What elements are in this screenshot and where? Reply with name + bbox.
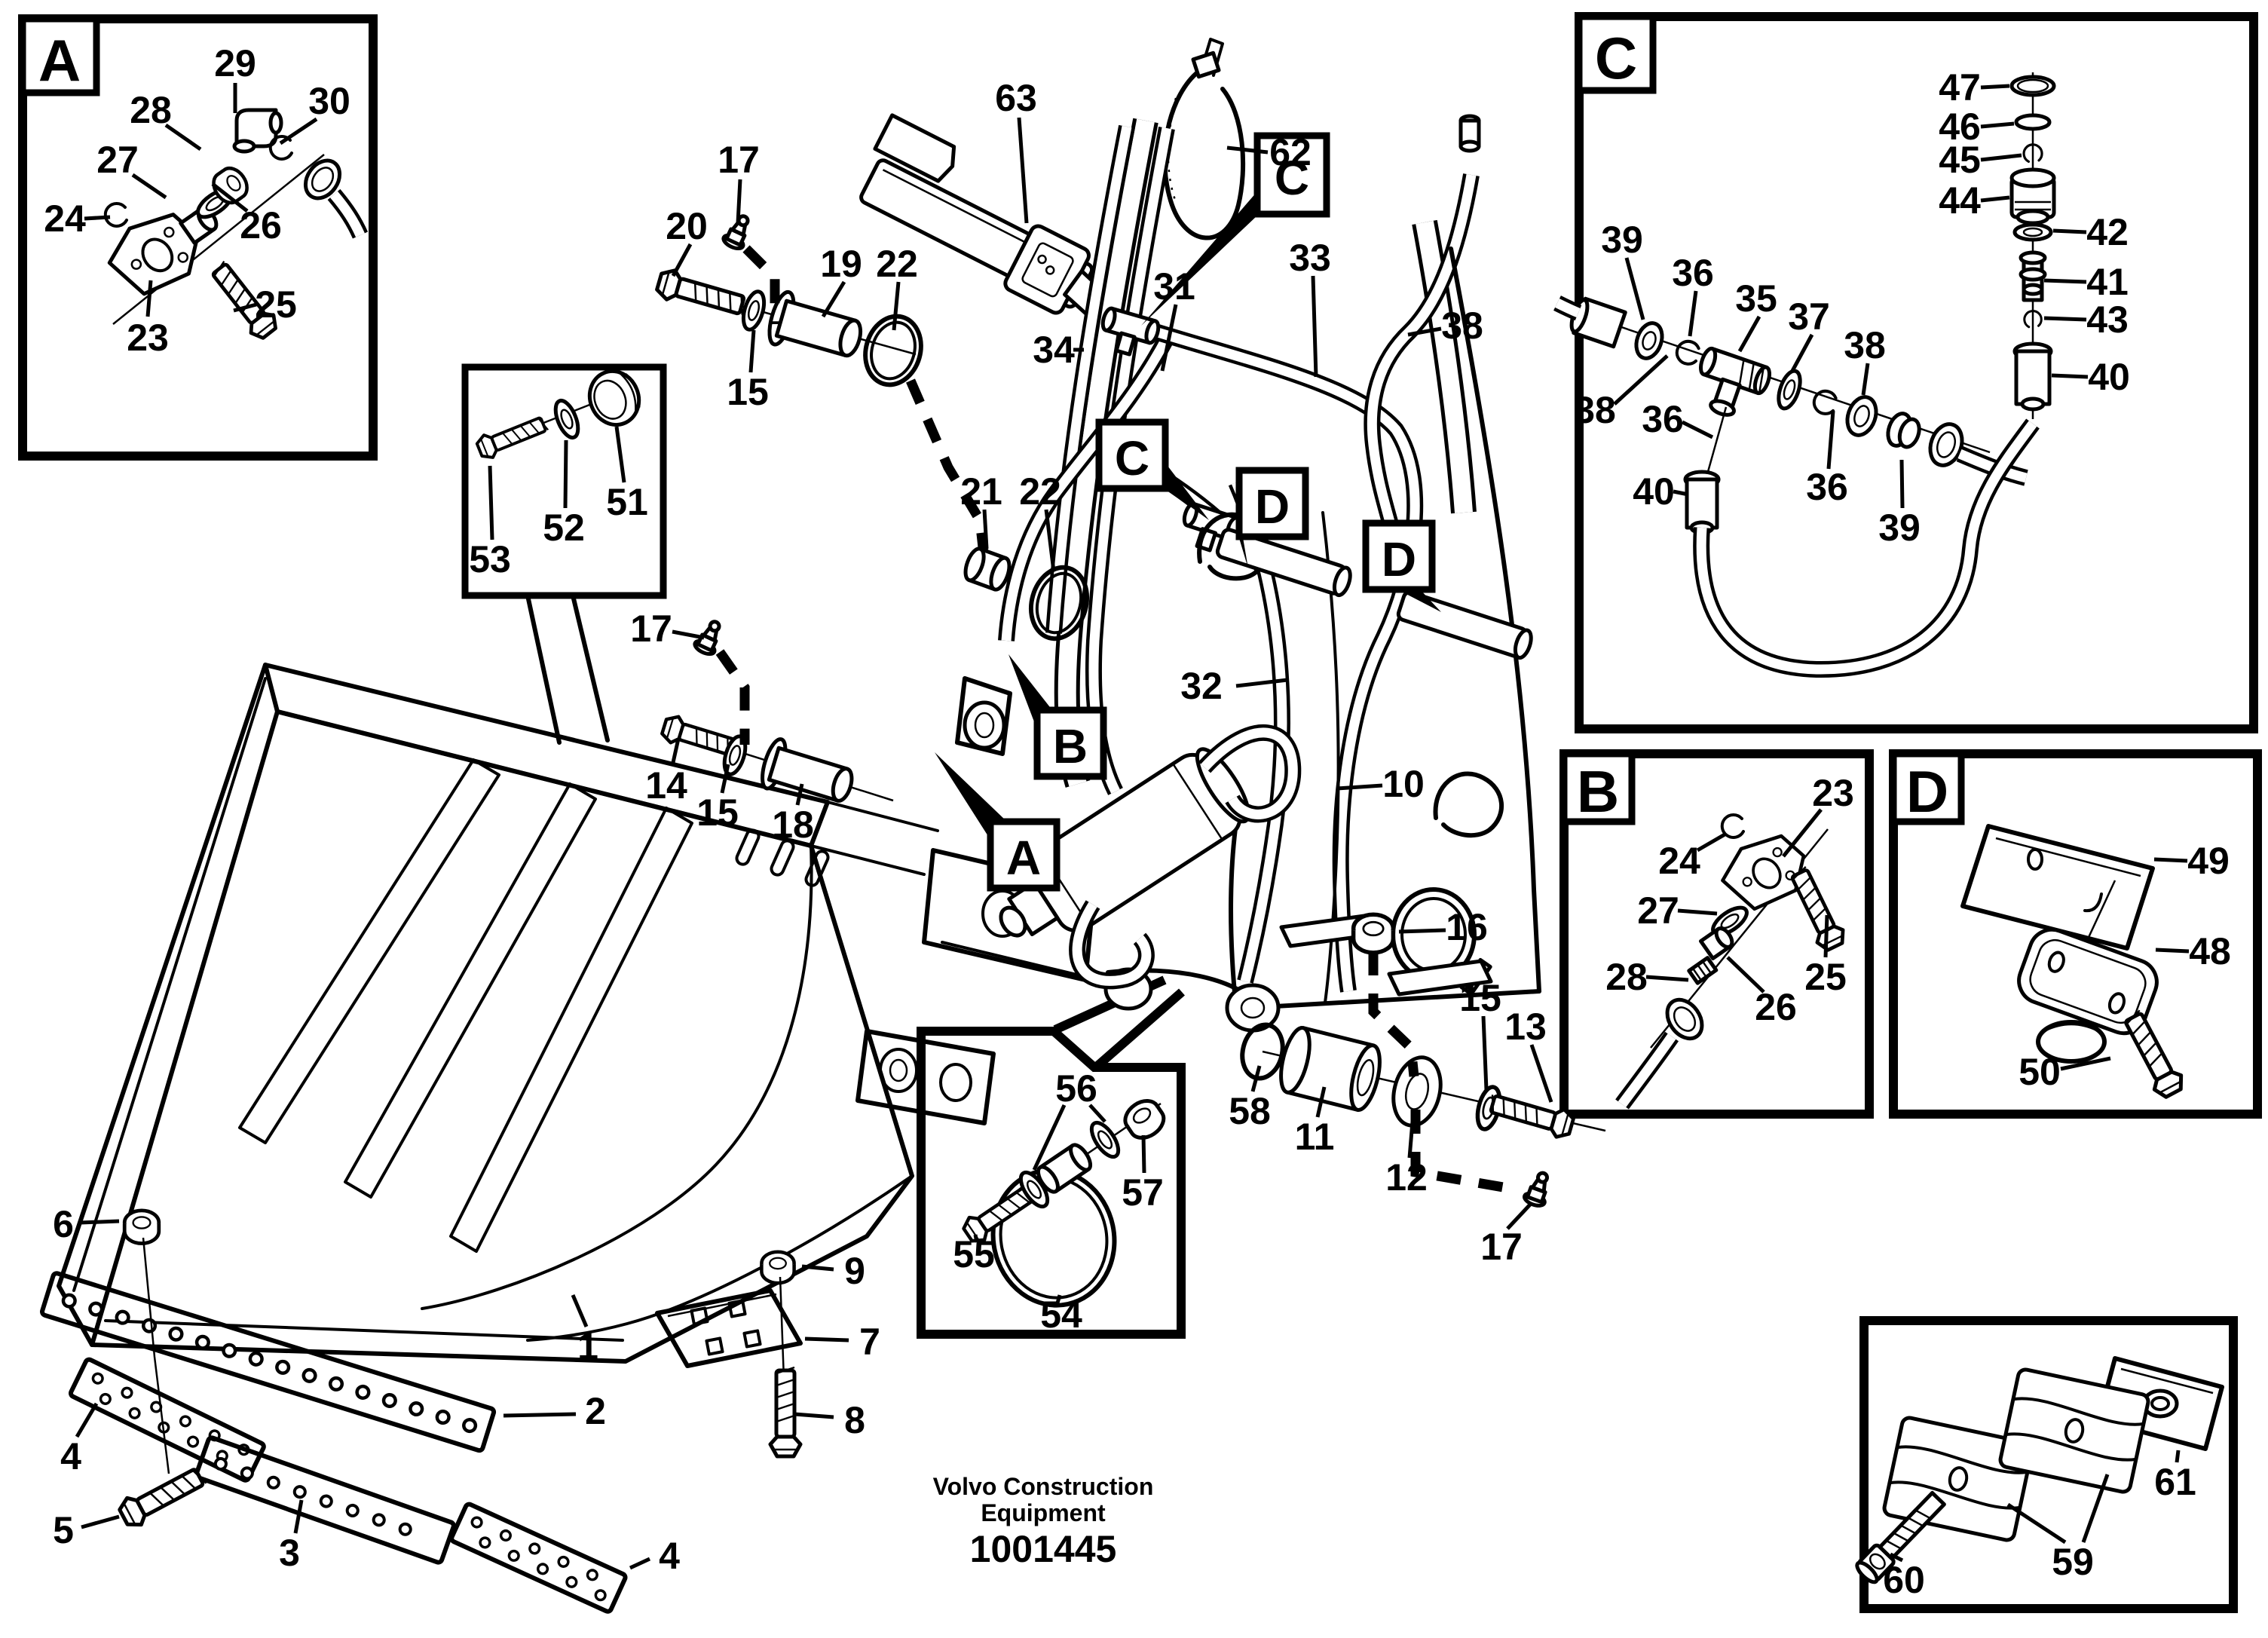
box-c-letter: C: [1595, 25, 1637, 91]
leader-line: [2154, 859, 2187, 861]
leader-line: [984, 510, 987, 549]
leader-line: [1313, 276, 1316, 377]
part-label-8: 8: [794, 1399, 865, 1441]
detail-box-c: C: [1557, 17, 2254, 729]
part-number: 15: [1459, 977, 1501, 1019]
part-label-54: 54: [1040, 1294, 1082, 1336]
brand-line-1: Volvo Construction: [933, 1473, 1154, 1500]
part-number: 13: [1504, 1006, 1547, 1048]
diagram-page: A: [0, 0, 2268, 1638]
part-number: 15: [696, 791, 739, 834]
part-number: 57: [1122, 1171, 1164, 1214]
part-number: 24: [44, 197, 86, 240]
leader-line: [2052, 375, 2088, 377]
part-number: 7: [859, 1321, 880, 1363]
nipple-41: [2021, 253, 2045, 300]
part-number: 15: [727, 371, 769, 413]
part-number: 4: [60, 1435, 81, 1477]
part-number: 30: [308, 80, 350, 122]
part-number: 45: [1939, 139, 1981, 181]
part-number: 16: [1446, 906, 1488, 948]
leader-line: [84, 217, 110, 219]
part-label-4: 4: [630, 1535, 680, 1577]
part-label-32: 32: [1180, 665, 1287, 707]
edge-strip-3: [195, 1437, 455, 1563]
part-number: 9: [844, 1250, 865, 1292]
part-label-17: 17: [630, 608, 704, 650]
part-number: 40: [2088, 356, 2130, 398]
part-label-60: 60: [1883, 1554, 1925, 1601]
part-number: 6: [53, 1203, 74, 1245]
footer: Volvo Construction Equipment 1001445: [933, 1473, 1154, 1570]
part-number: 53: [469, 538, 511, 580]
part-number: 24: [1658, 840, 1700, 882]
part-label-7: 7: [805, 1321, 880, 1363]
part-number: 26: [240, 204, 282, 246]
leader-line: [823, 282, 844, 317]
part-label-17: 17: [1480, 1205, 1530, 1268]
part-number: 11: [1295, 1116, 1335, 1158]
bushing-11: [1275, 1025, 1385, 1113]
marker-letter: C: [1115, 431, 1149, 485]
pin-19: [765, 289, 867, 366]
part-number: 35: [1735, 277, 1777, 320]
part-number: 2: [585, 1390, 606, 1432]
part-number: 20: [666, 205, 708, 247]
part-number: 1: [577, 1325, 598, 1367]
part-number: 41: [2086, 261, 2129, 303]
part-number: 56: [1055, 1067, 1097, 1110]
part-number: 8: [844, 1399, 865, 1441]
leader-line: [1399, 930, 1446, 932]
part-number: 26: [1755, 986, 1797, 1028]
part-number: 38: [1574, 389, 1616, 431]
part-label-2: 2: [503, 1390, 606, 1432]
leader-line: [738, 179, 740, 223]
leader-line: [1483, 1016, 1486, 1090]
box-a-letter: A: [38, 27, 81, 93]
leader-line: [1826, 915, 1827, 957]
part-number: 44: [1939, 179, 1981, 222]
leader-line: [2044, 280, 2086, 282]
part-number: 29: [214, 42, 256, 84]
marker-callout-c: C: [1099, 422, 1209, 520]
part-number: 38: [1844, 324, 1886, 366]
part-label-13: 13: [1504, 1006, 1551, 1102]
doc-number: 1001445: [970, 1528, 1117, 1570]
cable-tie-62: [1165, 39, 1243, 238]
box-d-letter: D: [1906, 758, 1948, 825]
leader-line: [1902, 460, 1902, 508]
leader-line: [672, 632, 704, 638]
part-label-9: 9: [802, 1250, 865, 1292]
part-label-22: 22: [876, 243, 918, 330]
part-number: 37: [1788, 295, 1830, 338]
part-number: 22: [876, 243, 918, 285]
part-number: 33: [1289, 237, 1331, 279]
marker-letter: D: [1255, 479, 1290, 534]
part-number: 17: [630, 608, 672, 650]
marker-letter: B: [1053, 719, 1088, 773]
part-number: 28: [1605, 956, 1648, 998]
hose-connector: [1461, 116, 1479, 151]
leader-line: [794, 1414, 834, 1417]
part-number: 25: [255, 283, 297, 326]
part-label-19: 19: [820, 243, 862, 317]
part-number: 36: [1672, 252, 1714, 294]
part-number: 17: [718, 139, 760, 181]
leader-line: [503, 1414, 576, 1416]
part-number: 63: [995, 77, 1037, 119]
plug-44: [2012, 170, 2054, 223]
part-label-33: 33: [1289, 237, 1331, 377]
leader-line: [2044, 318, 2086, 320]
part-number: 40: [1633, 470, 1675, 513]
part-number: 36: [1806, 466, 1848, 508]
part-number: 3: [279, 1532, 300, 1574]
linkage-assembly: [655, 116, 1605, 1208]
part-number: 39: [1878, 507, 1921, 549]
leader-line: [2156, 950, 2189, 951]
cutting-edges: [41, 1211, 626, 1612]
part-number: 58: [1229, 1090, 1271, 1132]
leader-line: [1981, 86, 2009, 87]
part-number: 27: [1637, 889, 1679, 932]
fitting-40-left: [1685, 472, 1719, 533]
part-number: 14: [645, 764, 687, 807]
part-number: 5: [53, 1509, 74, 1551]
part-number: 31: [1153, 265, 1195, 308]
parts-diagram-svg: A: [0, 0, 2268, 1638]
leader-line: [1019, 118, 1027, 223]
part-number: 60: [1883, 1559, 1925, 1601]
part-number: 23: [1812, 772, 1854, 814]
marker-letter: D: [1382, 532, 1416, 586]
part-number: 54: [1040, 1294, 1082, 1336]
part-number: 62: [1269, 131, 1312, 173]
part-label-17: 17: [718, 139, 760, 223]
part-number: 23: [127, 317, 169, 359]
part-number: 10: [1382, 763, 1425, 805]
part-label-5: 5: [53, 1509, 119, 1551]
leader-line: [565, 440, 566, 508]
part-number: 22: [1019, 470, 1061, 513]
part-label-4: 4: [60, 1404, 96, 1477]
part-label-34: 34: [1033, 329, 1084, 371]
part-label-1: 1: [573, 1295, 598, 1367]
part-number: 21: [960, 470, 1002, 513]
leader-line: [81, 1517, 119, 1527]
part-number: 27: [96, 139, 139, 181]
pin-d2: [1397, 591, 1534, 660]
part-number: 50: [2019, 1051, 2061, 1093]
part-label-16: 16: [1399, 906, 1488, 948]
part-number: 43: [2086, 299, 2129, 341]
part-number: 61: [2154, 1461, 2196, 1503]
part-label-15: 15: [1459, 977, 1501, 1090]
part-label-55: 55: [953, 1233, 995, 1275]
leader-line: [751, 330, 754, 372]
part-number: 47: [1939, 66, 1981, 109]
part-label-15: 15: [727, 330, 769, 413]
leader-line: [1532, 1045, 1551, 1102]
brand-line-2: Equipment: [981, 1499, 1106, 1526]
leader-line: [2053, 231, 2086, 232]
part-number: 55: [953, 1233, 995, 1275]
leader-line: [573, 1295, 586, 1327]
part-number: 18: [772, 804, 814, 846]
leader-line: [490, 466, 492, 540]
part-number: 28: [130, 89, 172, 131]
fitting-40-right: [2015, 344, 2051, 409]
leader-line: [805, 1339, 849, 1340]
part-label-14: 14: [645, 739, 687, 807]
part-label-63: 63: [995, 77, 1037, 223]
part-number: 48: [2189, 930, 2231, 972]
part-number: 36: [1642, 398, 1684, 440]
edge-strip-4-right: [451, 1503, 627, 1612]
part-number: 34: [1033, 329, 1075, 371]
part-number: 49: [2187, 840, 2230, 882]
leader-line: [1046, 510, 1054, 571]
part-number: 17: [1480, 1226, 1523, 1268]
leader-line: [80, 1221, 119, 1223]
part-number: 59: [2052, 1541, 2094, 1583]
part-label-20: 20: [666, 205, 708, 276]
part-number: 39: [1601, 219, 1643, 261]
part-number: 51: [606, 481, 648, 523]
part-number: 12: [1385, 1156, 1428, 1199]
edge-strip-2: [41, 1272, 495, 1451]
part-number: 4: [659, 1535, 680, 1577]
leader-line: [77, 1404, 96, 1437]
part-number: 32: [1180, 665, 1223, 707]
part-number: 52: [543, 507, 585, 549]
box-b-letter: B: [1577, 758, 1619, 825]
part-number: 42: [2086, 211, 2129, 253]
roller-21: [962, 547, 1013, 592]
leader-line: [295, 1500, 301, 1533]
part-number: 25: [1804, 956, 1847, 998]
leader-line: [630, 1559, 650, 1568]
leader-line: [673, 244, 690, 276]
pin-18: [758, 736, 858, 812]
leader-line: [1143, 1135, 1144, 1173]
part-number: 19: [820, 243, 862, 285]
marker-letter: A: [1006, 831, 1041, 885]
part-number: 38: [1441, 305, 1483, 347]
